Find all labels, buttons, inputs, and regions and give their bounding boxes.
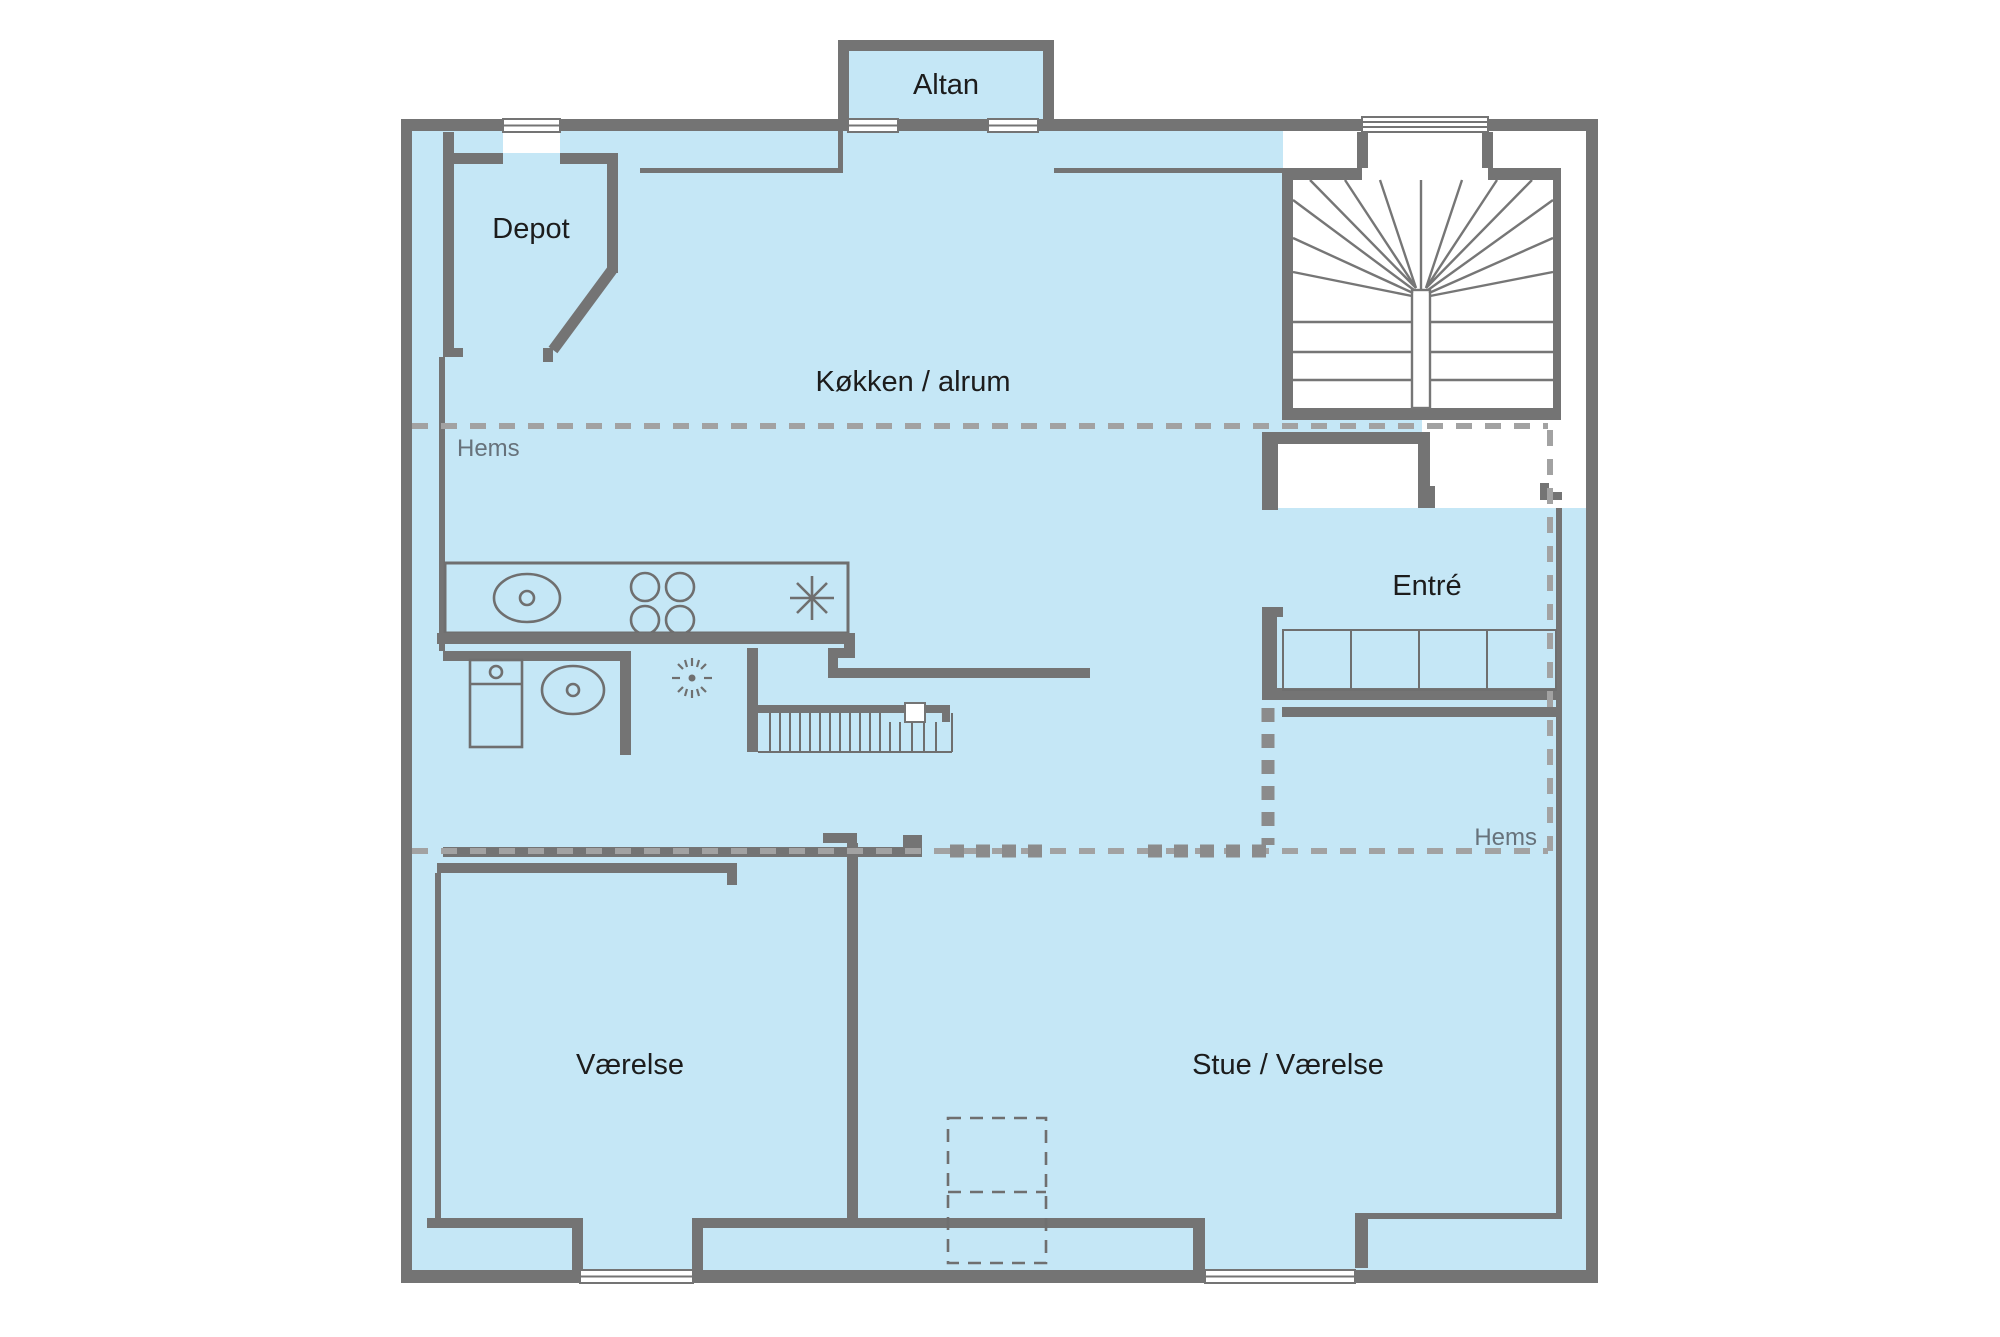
window-icon bbox=[1205, 1270, 1355, 1283]
balcony-wall-left bbox=[838, 40, 849, 130]
room-label-entre: Entré bbox=[1392, 570, 1461, 602]
window-icon bbox=[580, 1270, 693, 1283]
room-label-kitchen: Køkken / alrum bbox=[816, 366, 1011, 398]
room-label-depot: Depot bbox=[492, 213, 569, 245]
balcony-wall-top bbox=[838, 40, 1054, 51]
window-icon bbox=[988, 119, 1038, 132]
shower-drain-icon bbox=[672, 658, 712, 698]
floorplan-page: Altan Depot Køkken / alrum Hems Entré He… bbox=[0, 0, 2000, 1337]
window-icon bbox=[848, 119, 898, 132]
window-icon bbox=[503, 119, 560, 132]
room-label-altan: Altan bbox=[913, 69, 979, 101]
balcony-wall-right bbox=[1043, 40, 1054, 130]
hems-label-lower: Hems bbox=[1474, 824, 1537, 851]
window-icon bbox=[1362, 117, 1488, 132]
room-label-vaerelse: Værelse bbox=[576, 1049, 684, 1081]
hems-label-upper: Hems bbox=[457, 435, 520, 462]
room-label-stue: Stue / Værelse bbox=[1192, 1049, 1384, 1081]
floorplan-drawing: Altan Depot Køkken / alrum Hems Entré He… bbox=[0, 0, 2000, 1337]
